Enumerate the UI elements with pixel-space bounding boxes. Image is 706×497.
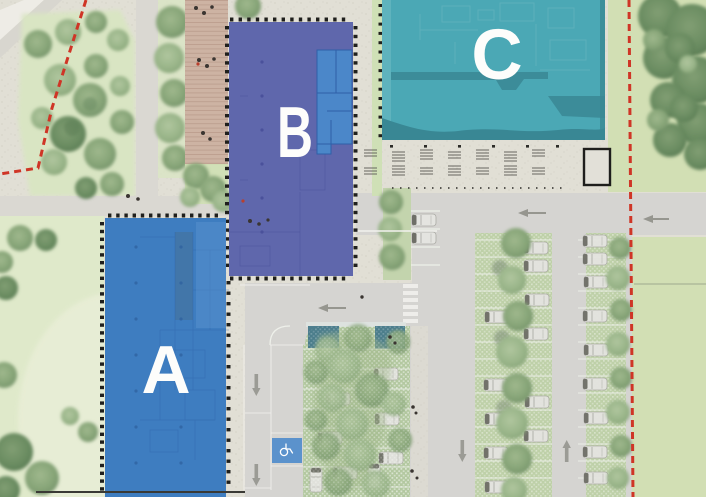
- svg-text:C: C: [471, 16, 522, 95]
- svg-text:B: B: [277, 93, 313, 173]
- svg-text:A: A: [141, 332, 190, 408]
